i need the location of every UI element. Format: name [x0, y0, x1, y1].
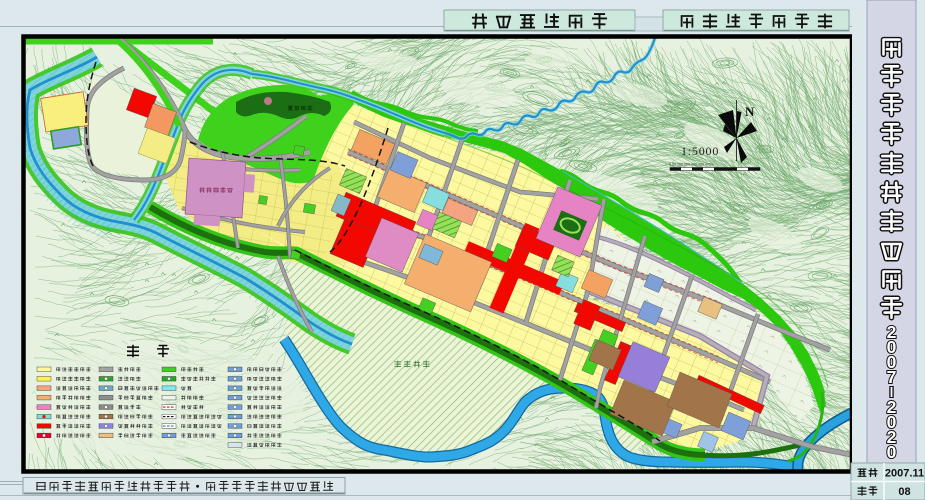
svg-text:7: 7	[887, 367, 897, 387]
svg-text:0 50 100 150 200 300: 0 50 100 150 200 300 400m	[669, 163, 714, 167]
svg-text:0: 0	[887, 442, 897, 462]
svg-text:08: 08	[898, 486, 910, 498]
svg-text:2007.11: 2007.11	[885, 468, 924, 480]
svg-text:1:5000: 1:5000	[681, 144, 719, 158]
svg-text:N: N	[745, 104, 755, 119]
